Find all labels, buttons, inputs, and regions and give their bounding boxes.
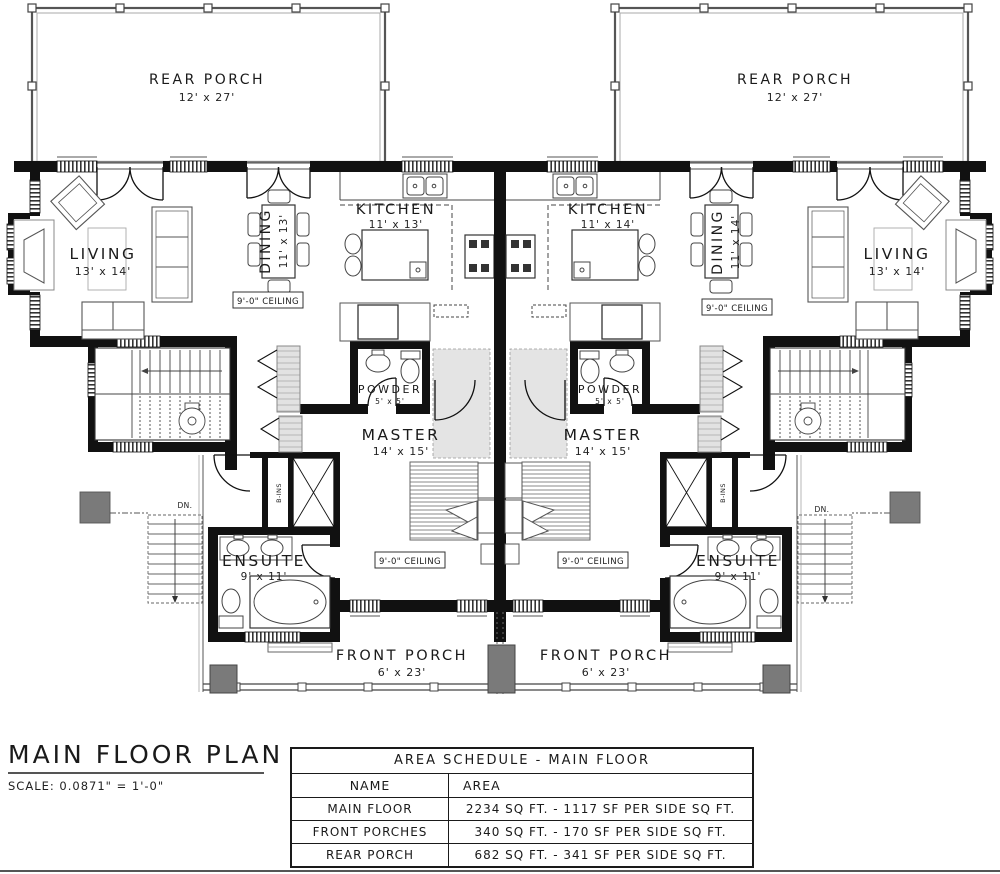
ceiling-tag-master-right: 9'-0" CEILING xyxy=(562,557,624,567)
ceiling-tag-master-left: 9'-0" CEILING xyxy=(379,557,441,567)
title-underline xyxy=(8,772,264,774)
unit-right-linework xyxy=(494,4,993,693)
hallway-floor xyxy=(433,349,490,458)
label-front-porch-right: FRONT PORCH xyxy=(540,648,672,664)
unit-left-linework xyxy=(7,4,506,693)
row-name: FRONT PORCHES xyxy=(292,821,449,843)
stairs-down-note-right: DN. xyxy=(815,505,830,514)
label-rear-porch-left: REAR PORCH xyxy=(149,72,265,88)
area-schedule-table: AREA SCHEDULE - MAIN FLOOR NAME AREA MAI… xyxy=(290,747,754,868)
label-master-left-dims: 14' x 15' xyxy=(373,445,430,458)
label-rear-porch-right: REAR PORCH xyxy=(737,72,853,88)
label-powder-left: POWDER xyxy=(358,383,422,396)
label-front-porch-left-dims: 6' x 23' xyxy=(378,666,427,679)
shower xyxy=(293,458,334,527)
label-master-left: MASTER xyxy=(362,426,441,444)
row-area: 2234 SQ FT. - 1117 SF PER SIDE SQ FT. xyxy=(449,798,752,820)
label-dining-right-dims: 11' x 14' xyxy=(730,215,742,269)
label-kitchen-left-dims: 11' x 13' xyxy=(369,219,423,231)
title-block: MAIN FLOOR PLAN SCALE: 0.0871" = 1'-0" xyxy=(8,740,278,793)
label-dining-left: DINING xyxy=(258,208,274,274)
table-row: FRONT PORCHES 340 SQ FT. - 170 SF PER SI… xyxy=(292,821,752,844)
ceiling-tag-living-left: 9'-0" CEILING xyxy=(237,297,299,307)
label-kitchen-right: KITCHEN xyxy=(568,202,648,218)
floor-plan-sheet: REAR PORCH 12' x 27' LIVING 13' x 14' DI… xyxy=(0,0,1000,874)
label-powder-left-dims: 5' x 5' xyxy=(375,397,405,406)
label-living-left: LIVING xyxy=(70,245,137,263)
label-ensuite-right-dims: 9' x 11' xyxy=(715,571,762,583)
label-ensuite-left-dims: 9' x 11' xyxy=(241,571,288,583)
label-powder-right-dims: 5' x 5' xyxy=(595,397,625,406)
label-living-left-dims: 13' x 14' xyxy=(75,265,132,278)
bay-window xyxy=(7,216,54,292)
label-front-porch-left: FRONT PORCH xyxy=(336,648,468,664)
row-area: 682 SQ FT. - 341 SF PER SIDE SQ FT. xyxy=(449,844,752,866)
table-row: REAR PORCH 682 SQ FT. - 341 SF PER SIDE … xyxy=(292,844,752,866)
label-ensuite-right: ENSUITE xyxy=(696,552,780,570)
ceiling-tag-living-right: 9'-0" CEILING xyxy=(706,304,768,314)
label-front-porch-right-dims: 6' x 23' xyxy=(582,666,631,679)
label-kitchen-left: KITCHEN xyxy=(356,202,436,218)
plan-scale-note: SCALE: 0.0871" = 1'-0" xyxy=(8,779,278,793)
label-living-right-dims: 13' x 14' xyxy=(869,265,926,278)
plan-title: MAIN FLOOR PLAN xyxy=(8,740,278,769)
label-living-right: LIVING xyxy=(864,245,931,263)
label-powder-right: POWDER xyxy=(578,383,642,396)
label-dining-left-dims: 11' x 13' xyxy=(278,214,290,268)
label-master-right-dims: 14' x 15' xyxy=(575,445,632,458)
area-schedule-header-row: NAME AREA xyxy=(292,774,752,798)
stairs-down-note-left: DN. xyxy=(178,501,193,510)
label-dining-right: DINING xyxy=(710,209,726,275)
column-header-area: AREA xyxy=(449,774,752,797)
row-area: 340 SQ FT. - 170 SF PER SIDE SQ FT. xyxy=(449,821,752,843)
builtins-note-right: B-INS xyxy=(719,483,727,503)
label-rear-porch-right-dims: 12' x 27' xyxy=(767,91,824,104)
column-header-name: NAME xyxy=(292,774,449,797)
row-name: MAIN FLOOR xyxy=(292,798,449,820)
label-ensuite-left: ENSUITE xyxy=(222,552,306,570)
center-porch-pillar xyxy=(488,645,515,693)
row-name: REAR PORCH xyxy=(292,844,449,866)
area-schedule-title: AREA SCHEDULE - MAIN FLOOR xyxy=(292,749,752,774)
kitchen-fixtures xyxy=(340,172,494,341)
builtins-note-left: B-INS xyxy=(275,483,283,503)
hall-closets xyxy=(258,346,302,452)
table-row: MAIN FLOOR 2234 SQ FT. - 1117 SF PER SID… xyxy=(292,798,752,821)
master-furniture xyxy=(410,462,495,564)
interior-stairs xyxy=(95,348,230,440)
label-kitchen-right-dims: 11' x 14' xyxy=(581,219,635,231)
sheet-bottom-border xyxy=(0,870,1000,872)
label-rear-porch-left-dims: 12' x 27' xyxy=(179,91,236,104)
label-master-right: MASTER xyxy=(564,426,643,444)
